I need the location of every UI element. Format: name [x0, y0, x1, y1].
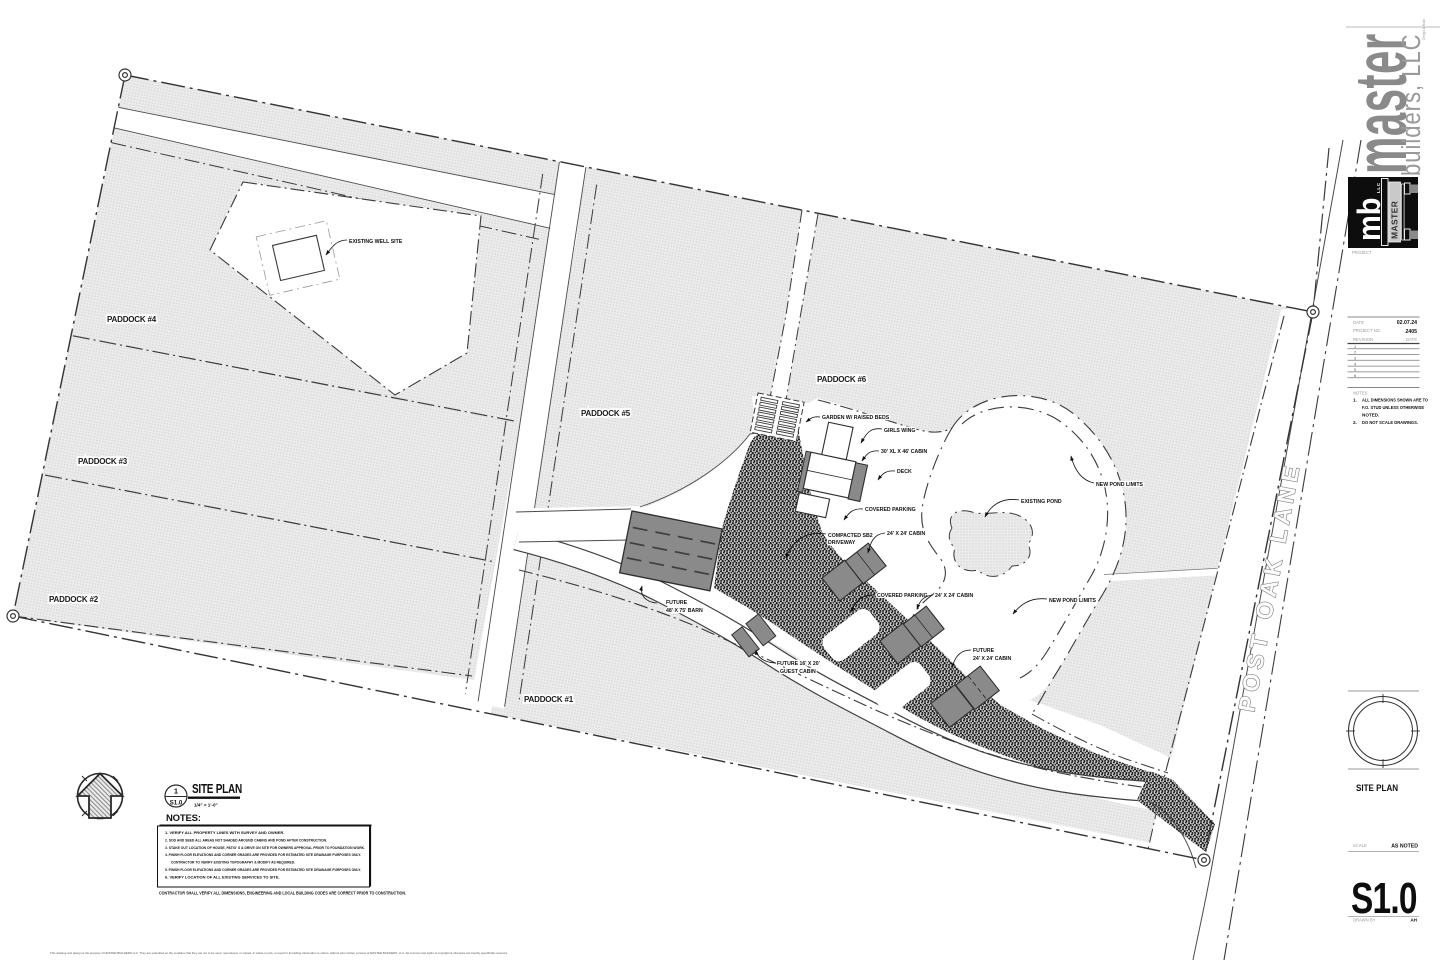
svg-text:FUTURE: FUTURE — [666, 600, 688, 606]
svg-text:GIRLS WING: GIRLS WING — [884, 428, 915, 434]
svg-text:NOTED.: NOTED. — [1362, 413, 1379, 418]
svg-text:2.: 2. — [1353, 420, 1357, 425]
svg-text:MASTER: MASTER — [1390, 201, 1400, 239]
svg-text:24' X 24' CABIN: 24' X 24' CABIN — [973, 656, 1011, 662]
svg-text:1.: 1. — [1353, 398, 1357, 403]
svg-text:6. VERIFY LOCATION OF ALL EXI: 6. VERIFY LOCATION OF ALL EXISTING SERVI… — [165, 874, 280, 879]
svg-text:2. SOD AND SEED ALL AREAS NOT: 2. SOD AND SEED ALL AREAS NOT SHADED ARO… — [165, 837, 327, 842]
svg-text:2405: 2405 — [1405, 329, 1417, 335]
svg-text:DATE: DATE — [1406, 337, 1417, 342]
svg-text:GARDEN W/ RAISED BEDS: GARDEN W/ RAISED BEDS — [822, 415, 890, 421]
svg-text:DATE: DATE — [1353, 320, 1364, 325]
svg-text:5. FINISH FLOOR ELEVATIONS AN: 5. FINISH FLOOR ELEVATIONS AND CORNER GR… — [165, 867, 361, 872]
svg-text:02.07.24: 02.07.24 — [1397, 320, 1417, 326]
svg-text:NEW POND LIMITS: NEW POND LIMITS — [1049, 598, 1097, 604]
svg-text:PADDOCK #2: PADDOCK #2 — [49, 595, 99, 604]
svg-text:30' XL X 46' CABIN: 30' XL X 46' CABIN — [881, 449, 927, 455]
svg-text:CONTRACTOR SHALL VERIFY ALL DI: CONTRACTOR SHALL VERIFY ALL DIMENSIONS, … — [159, 891, 406, 896]
svg-text:1/4" = 1'-0": 1/4" = 1'-0" — [194, 803, 218, 808]
svg-text:4: 4 — [1354, 362, 1356, 366]
svg-text:LLC: LLC — [1376, 182, 1381, 193]
svg-text:This drawing and design is the: This drawing and design is the property … — [50, 951, 508, 955]
svg-text:EXISTING POND: EXISTING POND — [1021, 499, 1062, 505]
svg-text:NOTES: NOTES — [1353, 391, 1368, 396]
svg-text:2: 2 — [1354, 351, 1356, 355]
svg-text:6: 6 — [1354, 374, 1356, 378]
svg-text:DRAWN BY: DRAWN BY — [1353, 918, 1376, 923]
svg-text:PADDOCK #6: PADDOCK #6 — [817, 375, 867, 384]
svg-text:S1.0: S1.0 — [170, 800, 183, 807]
svg-text:FUTURE 16' X 20': FUTURE 16' X 20' — [777, 661, 820, 667]
svg-text:24' X 24' CABIN: 24' X 24' CABIN — [887, 531, 925, 537]
svg-text:PROJECT: PROJECT — [1352, 250, 1372, 255]
svg-text:24' X 24' CABIN: 24' X 24' CABIN — [935, 593, 973, 599]
svg-text:GUEST CABIN: GUEST CABIN — [780, 669, 816, 675]
svg-text:PADDOCK #1: PADDOCK #1 — [524, 695, 574, 704]
svg-text:SITE PLAN: SITE PLAN — [1356, 782, 1398, 793]
svg-text:FUTURE: FUTURE — [973, 648, 995, 654]
svg-text:COVERED PARKING: COVERED PARKING — [865, 507, 916, 513]
svg-text:4. FINISH FLOOR ELEVATIONS AN: 4. FINISH FLOOR ELEVATIONS AND CORNER GR… — [165, 852, 361, 857]
svg-text:48' X 75' BARN: 48' X 75' BARN — [666, 608, 703, 614]
svg-text:PROJECT NO.: PROJECT NO. — [1353, 328, 1381, 333]
svg-text:1. VERIFY ALL PROPERTY LINES: 1. VERIFY ALL PROPERTY LINES WITH SURVEY… — [165, 830, 284, 835]
svg-text:DRIVEWAY: DRIVEWAY — [828, 540, 856, 546]
svg-text:EXISTING WELL SITE: EXISTING WELL SITE — [349, 239, 403, 245]
svg-text:PADDOCK #3: PADDOCK #3 — [78, 457, 128, 466]
svg-text:NEW POND LIMITS: NEW POND LIMITS — [1096, 482, 1144, 488]
svg-text:ALL DIMENSIONS SHOWN ARE TO: ALL DIMENSIONS SHOWN ARE TO — [1362, 398, 1428, 403]
svg-text:SCALE: SCALE — [1353, 843, 1367, 848]
svg-text:3: 3 — [1354, 357, 1356, 361]
svg-text:builders, LLC: builders, LLC — [1397, 33, 1426, 176]
svg-text:COVERED PARKING: COVERED PARKING — [877, 593, 928, 599]
svg-text:5: 5 — [1354, 368, 1356, 372]
svg-text:1: 1 — [1354, 345, 1356, 349]
svg-text:3. STAKE OUT LOCATION OF HOUS: 3. STAKE OUT LOCATION OF HOUSE, PATIO' S… — [165, 845, 365, 850]
svg-text:DO NOT SCALE DRAWINGS.: DO NOT SCALE DRAWINGS. — [1362, 420, 1418, 425]
svg-text:PADDOCK #5: PADDOCK #5 — [581, 409, 631, 418]
svg-text:DECK: DECK — [897, 469, 912, 475]
svg-text:Design & Build: Design & Build — [1422, 19, 1426, 40]
svg-text:PADDOCK #4: PADDOCK #4 — [107, 315, 157, 324]
svg-text:SITE PLAN: SITE PLAN — [192, 783, 242, 796]
svg-text:NOTES:: NOTES: — [166, 813, 201, 824]
svg-text:AH: AH — [1410, 918, 1417, 923]
svg-text:F.O. STUD UNLESS OTHERWISE: F.O. STUD UNLESS OTHERWISE — [1362, 405, 1424, 410]
svg-text:REVISION: REVISION — [1353, 337, 1373, 342]
svg-text:AS NOTED: AS NOTED — [1391, 844, 1418, 850]
svg-text:CONTRACTOR TO VERIFY EXISTING: CONTRACTOR TO VERIFY EXISTING TOPOGRAPHY… — [171, 860, 295, 865]
svg-text:COMPACTED SB2: COMPACTED SB2 — [828, 533, 873, 539]
svg-text:1: 1 — [174, 787, 178, 796]
svg-text:S1.0: S1.0 — [1351, 875, 1417, 923]
